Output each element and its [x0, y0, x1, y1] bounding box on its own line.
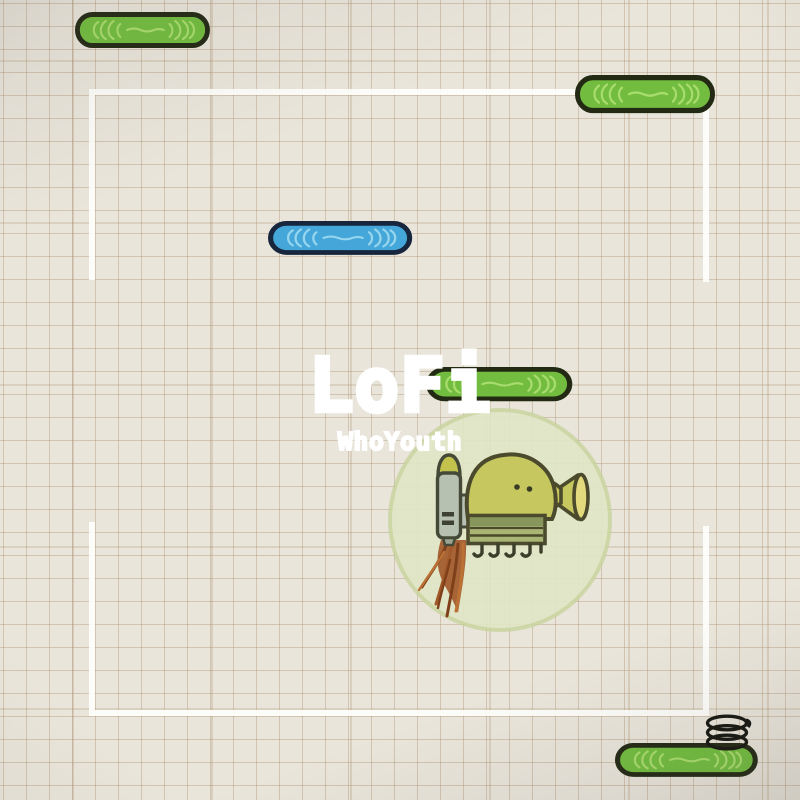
doodler-eye-right [527, 486, 533, 492]
doodle-jump-cover: LoFi WhoYouth [0, 0, 800, 800]
blue-platform [271, 223, 410, 252]
green-platform-top-left [77, 15, 207, 46]
green-platform-top-right [578, 78, 713, 111]
subtitle-text: WhoYouth [0, 429, 800, 454]
title-text: LoFi [0, 349, 800, 423]
trunk-nozzle [574, 475, 588, 520]
doodler-eye-left [514, 484, 520, 490]
